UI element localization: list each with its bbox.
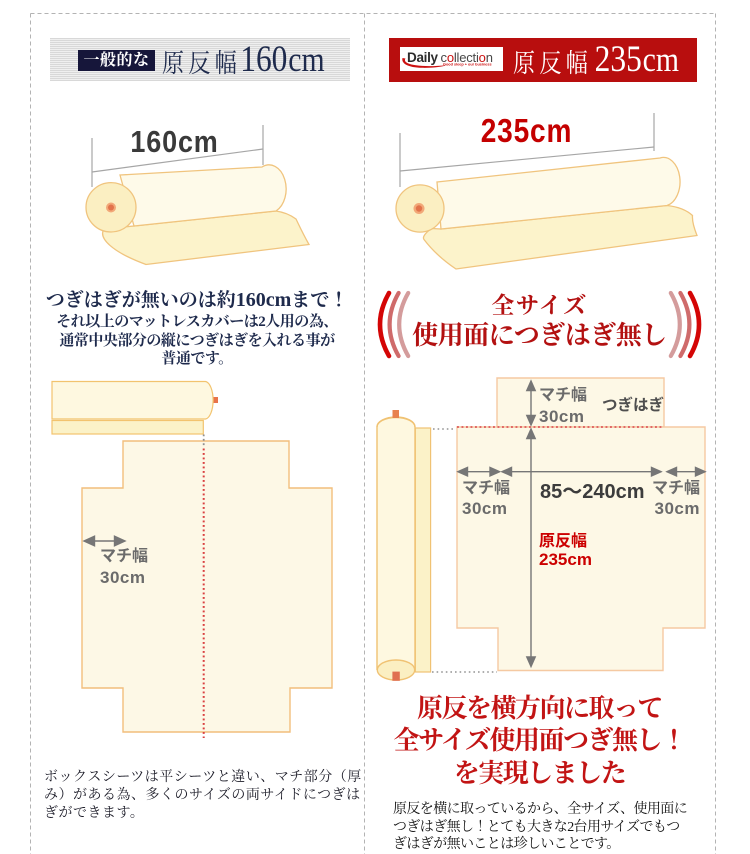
svg-text:Daily: Daily — [407, 50, 439, 65]
svg-text:Good sleep + our business: Good sleep + our business — [443, 63, 492, 67]
